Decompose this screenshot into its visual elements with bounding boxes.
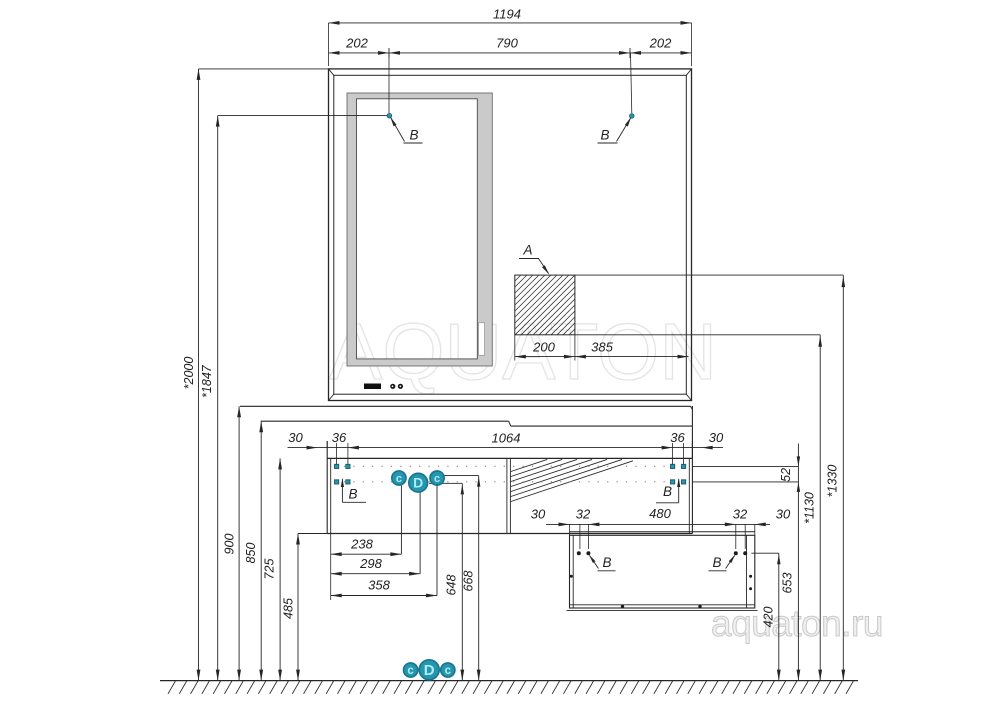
svg-text:B: B bbox=[602, 555, 611, 570]
svg-text:30: 30 bbox=[776, 506, 791, 521]
svg-text:30: 30 bbox=[288, 430, 303, 445]
svg-text:52: 52 bbox=[779, 468, 793, 482]
svg-text:30: 30 bbox=[709, 430, 724, 445]
svg-text:32: 32 bbox=[733, 506, 748, 521]
svg-text:648: 648 bbox=[445, 575, 459, 596]
svg-text:298: 298 bbox=[359, 556, 382, 571]
svg-text:30: 30 bbox=[531, 506, 546, 521]
svg-text:c: c bbox=[434, 473, 440, 485]
svg-text:200: 200 bbox=[532, 340, 555, 355]
svg-text:420: 420 bbox=[761, 607, 775, 628]
svg-text:D: D bbox=[413, 475, 423, 491]
svg-text:B: B bbox=[663, 484, 672, 499]
svg-text:*1847: *1847 bbox=[200, 364, 214, 398]
svg-text:36: 36 bbox=[670, 430, 685, 445]
svg-text:*1330: *1330 bbox=[826, 465, 840, 498]
svg-text:480: 480 bbox=[649, 506, 671, 521]
svg-text:668: 668 bbox=[462, 571, 476, 592]
svg-text:B: B bbox=[409, 128, 418, 143]
svg-text:202: 202 bbox=[649, 36, 672, 51]
svg-text:B: B bbox=[348, 487, 357, 502]
svg-text:36: 36 bbox=[332, 430, 347, 445]
svg-text:B: B bbox=[600, 128, 609, 143]
svg-text:*1130: *1130 bbox=[803, 492, 817, 524]
svg-text:385: 385 bbox=[591, 340, 613, 355]
svg-text:900: 900 bbox=[223, 534, 237, 555]
svg-text:c: c bbox=[396, 473, 402, 485]
svg-text:32: 32 bbox=[576, 506, 591, 521]
svg-text:*2000: *2000 bbox=[182, 357, 196, 390]
svg-text:202: 202 bbox=[345, 36, 368, 51]
svg-text:725: 725 bbox=[263, 559, 277, 580]
svg-text:c: c bbox=[445, 665, 452, 677]
svg-text:1064: 1064 bbox=[492, 431, 521, 446]
svg-text:1194: 1194 bbox=[493, 7, 521, 22]
svg-text:c: c bbox=[407, 665, 414, 677]
svg-text:238: 238 bbox=[350, 537, 373, 552]
svg-text:653: 653 bbox=[781, 573, 795, 594]
svg-text:B: B bbox=[712, 555, 721, 570]
svg-text:D: D bbox=[424, 662, 435, 679]
svg-text:A: A bbox=[522, 243, 532, 258]
svg-text:358: 358 bbox=[368, 578, 390, 593]
svg-text:850: 850 bbox=[244, 543, 258, 564]
svg-text:485: 485 bbox=[282, 598, 296, 619]
svg-text:790: 790 bbox=[496, 36, 518, 51]
svg-text:aquaton.ru: aquaton.ru bbox=[711, 603, 883, 644]
